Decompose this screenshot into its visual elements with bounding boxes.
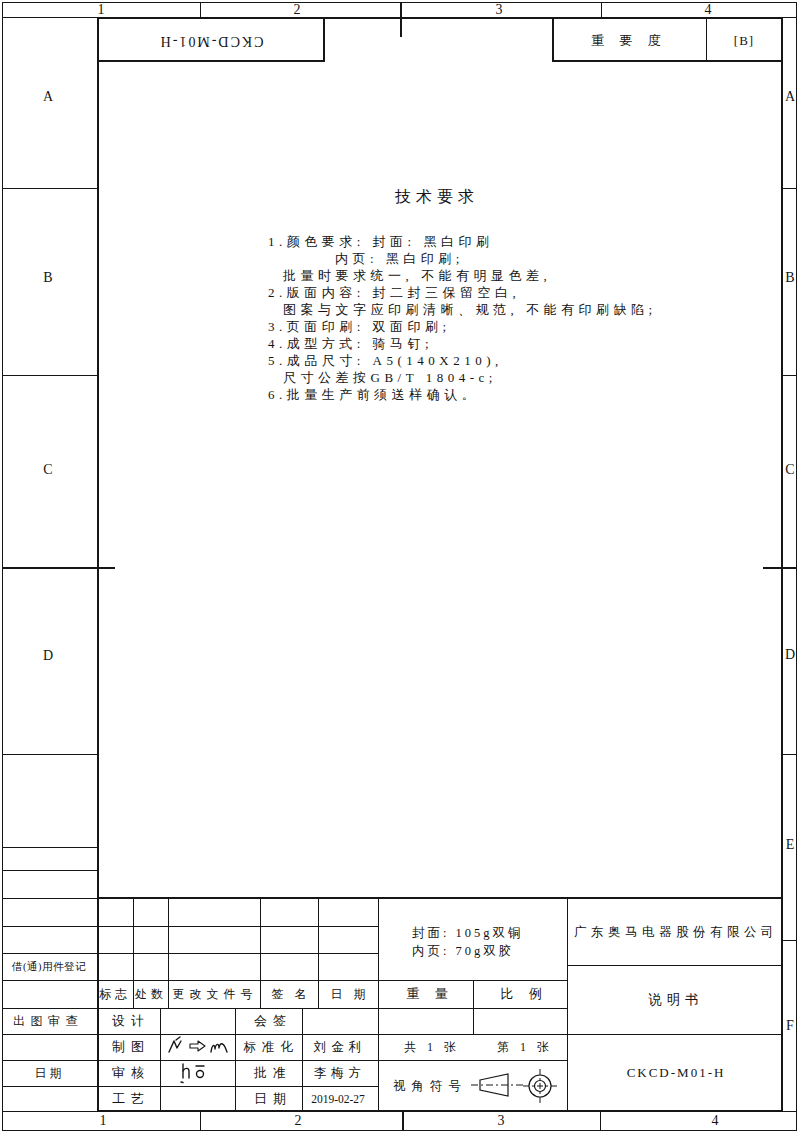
- projection-front-view-icon: [521, 1067, 559, 1105]
- bottom-centering-mark: [402, 1112, 404, 1131]
- tech-requirement-line: 1.颜色要求: 封面: 黑白印刷: [268, 233, 493, 251]
- grid-line: [2, 1060, 97, 1061]
- grid-line: [235, 1008, 236, 1112]
- zone-row-right-D: D: [785, 647, 795, 663]
- tech-requirement-line: 内页: 黑白印刷;: [335, 250, 464, 268]
- check-signature-icon: [177, 1061, 211, 1085]
- approval-date-value: 2019-02-27: [311, 1093, 365, 1105]
- weight-label: 重 量: [406, 985, 453, 1003]
- grid-line: [2, 1111, 797, 1112]
- grid-line: [600, 1112, 601, 1131]
- zone-col-bottom-1: 1: [100, 1113, 107, 1129]
- tech-requirement-line: 5.成品尺寸: A5(140X210),: [268, 352, 503, 370]
- approve-label: 批准: [254, 1064, 292, 1082]
- countersign-label: 会签: [254, 1012, 292, 1030]
- grid-line: [160, 1008, 161, 1112]
- grid-line: [302, 1008, 303, 1112]
- grid-line: [706, 17, 707, 62]
- revision-col-count: 处数: [135, 986, 167, 1003]
- role-design-label: 设计: [112, 1012, 150, 1030]
- grid-line: [97, 1086, 378, 1087]
- role-check-label: 审核: [112, 1064, 150, 1082]
- zone-col-bottom-2: 2: [295, 1113, 302, 1129]
- revision-col-mark: 标志: [99, 986, 131, 1003]
- date-label: 日期: [254, 1090, 292, 1108]
- grid-line: [783, 188, 797, 189]
- zone-row-left-C: C: [43, 462, 52, 478]
- grid-line: [97, 1060, 567, 1061]
- importance-label: 重 要 度: [591, 32, 667, 50]
- standardization-label: 标准化: [243, 1039, 299, 1056]
- doc-code-rotated-label: CKCD-M01-H: [159, 33, 264, 49]
- plot-review-label: 出图审查: [13, 1013, 83, 1030]
- document-title: 说明书: [648, 991, 704, 1009]
- grid-line: [260, 897, 261, 1008]
- drawing-sheet: 1 2 3 4 1 2 3 4 A B C D A B C D E F CKCD…: [0, 0, 802, 1134]
- zone-row-left-B: B: [43, 270, 52, 286]
- grid-line: [783, 754, 797, 755]
- scale-label: 比 例: [500, 985, 547, 1003]
- grid-line: [378, 897, 379, 1112]
- grid-line: [97, 1008, 567, 1009]
- grid-line: [567, 897, 568, 1112]
- role-drafting-label: 制图: [112, 1038, 150, 1056]
- zone-row-right-B: B: [785, 270, 794, 286]
- projection-side-view-icon: [468, 1071, 526, 1101]
- tech-requirement-line: 2.版面内容: 封二封三保留空白,: [268, 284, 520, 302]
- zone-col-top-4: 4: [705, 2, 712, 18]
- zone-row-right-E: E: [786, 837, 795, 853]
- tech-requirement-line: 尺寸公差按GB/T 1804-c;: [283, 369, 497, 387]
- drafting-signature-icon: [167, 1036, 229, 1058]
- grid-line: [2, 1086, 97, 1087]
- grid-line: [2, 754, 97, 755]
- grid-line: [168, 897, 169, 1008]
- tech-requirement-line: 3.页面印刷: 双面印刷;: [268, 318, 451, 336]
- role-process-label: 工艺: [112, 1090, 150, 1108]
- title-block-top-border: [97, 897, 783, 899]
- zone-col-bottom-4: 4: [712, 1113, 719, 1129]
- grid-line: [2, 926, 97, 927]
- grid-line: [2, 898, 97, 899]
- tech-requirements-title: 技术要求: [395, 187, 479, 208]
- grid-line: [200, 2, 201, 17]
- grid-line: [2, 1008, 97, 1009]
- sheets-total-label: 共 1 张: [404, 1039, 460, 1056]
- grid-line: [783, 375, 797, 376]
- grid-line: [2, 870, 97, 871]
- revision-col-signature: 签 名: [272, 986, 311, 1003]
- grid-line: [200, 1112, 201, 1131]
- right-centering-mark: [763, 567, 797, 569]
- sheet-number-label: 第 1 张: [497, 1039, 553, 1056]
- grid-line: [473, 980, 474, 1035]
- margin-date-label: 日 期: [35, 1065, 62, 1082]
- grid-line: [2, 188, 97, 189]
- importance-value: [B]: [734, 33, 754, 49]
- zone-row-left-D: D: [43, 648, 53, 664]
- revision-col-date: 日 期: [331, 986, 370, 1003]
- company-name: 广东奥马电器股份有限公司: [574, 924, 778, 941]
- zone-row-left-A: A: [43, 89, 53, 105]
- zone-row-right-A: A: [785, 89, 795, 105]
- grid-line: [97, 926, 378, 927]
- top-centering-mark: [400, 2, 402, 37]
- grid-line: [601, 2, 602, 17]
- tech-requirement-line: 批量时要求统一, 不能有明显色差,: [283, 267, 551, 285]
- grid-line: [2, 953, 97, 954]
- grid-line: [783, 940, 797, 941]
- approver-name: 李梅方: [314, 1065, 367, 1082]
- zone-row-right-F: F: [786, 1018, 794, 1034]
- standardization-name: 刘金利: [314, 1039, 367, 1056]
- drawing-number: CKCD-M01-H: [627, 1065, 726, 1081]
- zone-col-top-1: 1: [98, 2, 105, 18]
- grid-line: [97, 1034, 783, 1035]
- material-inner-spec: 内页: 70g双胶: [412, 943, 514, 960]
- grid-line: [2, 1034, 97, 1035]
- zone-col-bottom-3: 3: [498, 1113, 505, 1129]
- material-cover-spec: 封面: 105g双铜: [412, 925, 524, 942]
- grid-line: [2, 375, 97, 376]
- grid-line: [2, 847, 97, 848]
- grid-line: [2, 980, 97, 981]
- zone-col-top-2: 2: [294, 2, 301, 18]
- grid-line: [318, 897, 319, 1008]
- tech-requirement-line: 6.批量生产前须送样确认。: [268, 386, 479, 404]
- tech-requirement-line: 图案与文字应印刷清晰、规范, 不能有印刷缺陷;: [283, 301, 657, 319]
- grid-line: [567, 965, 783, 966]
- zone-row-right-C: C: [785, 462, 794, 478]
- tech-requirement-line: 4.成型方式: 骑马钉;: [268, 335, 433, 353]
- revision-col-file-no: 更改文件号: [173, 986, 258, 1003]
- borrow-register-label: 借(通)用件登记: [12, 960, 86, 974]
- zone-col-top-3: 3: [496, 2, 503, 18]
- grid-line: [133, 897, 134, 1008]
- left-centering-mark: [2, 567, 115, 569]
- projection-symbol-label: 视角符号: [393, 1078, 467, 1095]
- grid-line: [97, 953, 378, 954]
